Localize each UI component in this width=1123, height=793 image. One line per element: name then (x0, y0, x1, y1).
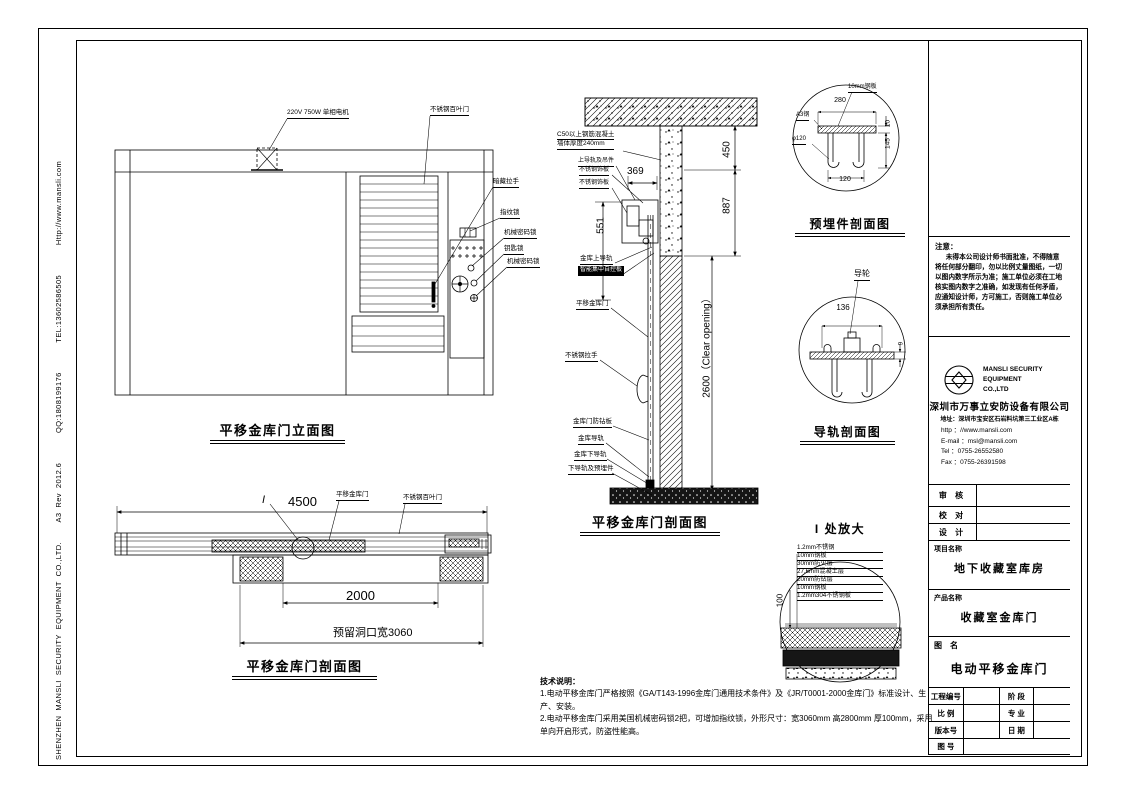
company-fax: Fax ：0755-26391598 (941, 458, 1070, 469)
stainless-plate-label-2: 不锈钢饰板 (579, 180, 609, 189)
section-door-label: 平移金库门 (576, 300, 609, 310)
figure-no-row: 图 号 (929, 739, 1070, 755)
mechanical-lock-label: 机械密码锁 (504, 229, 537, 239)
dim-100: 100 (776, 589, 785, 613)
drawing-name-label: 图 名 (929, 637, 1070, 651)
vault-lower-rail-label: 金库下导轨 (574, 451, 607, 461)
notice-body: 未得本公司设计师书面批准，不得随意将任何部分翻印，勿以比例丈量图纸，一切以图内数… (935, 253, 1064, 313)
title-block-empty-cell (929, 40, 1070, 237)
engineering-no-row: 工程编号 阶 段 (929, 688, 1070, 705)
layer-label-7: 1.2mm304不锈钢板 (797, 592, 883, 601)
dim-551: 551 (596, 211, 607, 241)
stainless-plate-label-1: 不锈钢饰板 (579, 167, 609, 176)
rail-detail-title: 导轨剖面图 (800, 423, 895, 445)
scale-row: 比 例 专 业 (929, 705, 1070, 722)
section-title: 平移金库门剖面图 (580, 512, 720, 536)
engineering-no-label: 工程编号 (929, 688, 964, 704)
notice-cell: 注意： 未得本公司设计师书面批准，不得随意将任何部分翻印，勿以比例丈量图纸，一切… (929, 237, 1070, 337)
concrete-wall-label: C50以上钢筋混凝土 墙体厚度240mm (557, 131, 614, 150)
company-en-line3: CO.,LTD (983, 385, 1043, 395)
dim-10: 10 (885, 114, 892, 134)
embed-plate-label: 10mm钢板 (848, 84, 877, 93)
product-name-cell: 产品名称 收藏室金库门 (929, 590, 1070, 637)
technical-note-2: 2.电动平移金库门采用美国机械密码锁2把，可增加指纹锁，外形尺寸：宽3060mm… (540, 713, 938, 738)
louver-door-label: 不锈钢百叶门 (430, 106, 469, 116)
company-cell: MANSLI SECURITY EQUIPMENT CO.,LTD 深圳市万事立… (929, 337, 1070, 485)
design-label: 设 计 (929, 524, 977, 540)
concrete-wall-label-line1: C50以上钢筋混凝土 (557, 131, 614, 140)
embed-phi-label: φ120 (792, 136, 806, 145)
elevation-drawing (108, 100, 548, 445)
proof-row: 校 对 (929, 507, 1070, 524)
dim-136: 136 (828, 303, 858, 312)
upper-rail-hanger-label: 上导轨及吊件 (578, 158, 614, 167)
mechanical-lock2-label: 机械密码锁 (507, 258, 540, 268)
guide-wheel-label: 导轮 (854, 269, 870, 281)
detail-marker-i: I (262, 494, 265, 506)
plan-door-label: 平移金库门 (336, 491, 369, 501)
dim-4500: 4500 (288, 494, 317, 509)
dim-280: 280 (825, 97, 855, 104)
project-name-value: 地下收藏室库房 (929, 560, 1070, 576)
concrete-wall-label-line2: 墙体厚度240mm (557, 140, 614, 148)
dim-9: 9 (898, 336, 905, 352)
embed-steel-label: A3钢 (796, 112, 809, 121)
major-label: 专 业 (1000, 705, 1035, 721)
notice-title: 注意： (935, 241, 1064, 252)
motor-label: 220V 750W 单相电机 (287, 109, 349, 119)
embed-detail-title: 预埋件剖面图 (795, 215, 905, 237)
plan-section-drawing (108, 488, 528, 660)
dim-369: 369 (627, 166, 644, 177)
company-cn-name: 深圳市万事立安防设备有限公司 (929, 399, 1070, 413)
dim-2000: 2000 (346, 588, 375, 603)
dim-120: 120 (830, 176, 860, 183)
project-name-label: 项目名称 (929, 541, 1070, 554)
vault-rail-label: 金库导轨 (578, 435, 604, 445)
proof-label: 校 对 (929, 507, 977, 523)
hidden-handle-label: 暗藏拉手 (493, 178, 519, 188)
vault-upper-rail-label: 金库上导轨 (580, 255, 613, 265)
dim-887: 887 (722, 191, 733, 221)
company-email: E-mail ：msl@mansli.com (941, 437, 1070, 448)
dim-450: 450 (722, 135, 733, 165)
company-tel: Tel ：0755-26552580 (941, 447, 1070, 458)
drawing-name-cell: 图 名 电动平移金库门 (929, 637, 1070, 688)
elevation-title: 平移金库门立面图 (210, 420, 345, 444)
company-address: 地址：深圳市宝安区石岩料坑第三工业区A栋 (929, 414, 1070, 423)
company-http: http ：//www.mansli.com (941, 426, 1070, 437)
review-label: 审 核 (929, 485, 977, 506)
enlarged-detail-title: I 处放大 (795, 520, 885, 538)
project-name-cell: 项目名称 地下收藏室库房 (929, 541, 1070, 590)
scale-label: 比 例 (929, 705, 964, 721)
product-name-value: 收藏室金库门 (929, 609, 1070, 625)
technical-notes: 技术说明： 1.电动平移金库门严格按照《GA/T143-1996金库门通用技术条… (540, 676, 938, 738)
stainless-handle-label: 不锈钢拉手 (565, 352, 598, 362)
version-label: 版本号 (929, 722, 964, 738)
key-lock-label: 钥匙锁 (504, 245, 524, 255)
version-row: 版本号 日 期 (929, 722, 1070, 739)
plan-title: 平移金库门剖面图 (232, 656, 377, 680)
dim-opening-3060: 预留洞口宽3060 (333, 624, 412, 640)
side-strip-text: SHENZHEN MANSLI SECURITY EQUIPMENT CO.,L… (54, 42, 63, 760)
technical-note-1: 1.电动平移金库门严格按照《GA/T143-1996金库门通用技术条件》及《JR… (540, 688, 938, 713)
plan-louver-label: 不锈钢百叶门 (403, 494, 442, 504)
stage-label: 阶 段 (1000, 688, 1035, 704)
company-en-line2: EQUIPMENT (983, 375, 1043, 385)
drawing-sheet: SHENZHEN MANSLI SECURITY EQUIPMENT CO.,L… (0, 0, 1123, 793)
title-block: 注意： 未得本公司设计师书面批准，不得随意将任何部分翻印，勿以比例丈量图纸，一切… (928, 40, 1070, 755)
control-board-label: 智能集中自控板 (578, 266, 624, 276)
lower-rail-embed-label: 下导轨及预埋件 (568, 465, 614, 475)
technical-notes-heading: 技术说明： (540, 676, 938, 688)
design-row: 设 计 (929, 524, 1070, 541)
dim-145: 145 (885, 134, 892, 154)
dim-clear-opening: 2600（Clear opening） (698, 291, 713, 401)
fingerprint-lock-label: 指纹锁 (500, 209, 520, 219)
product-name-label: 产品名称 (929, 590, 1070, 603)
anti-drill-plate-label: 金库门防钻板 (573, 418, 612, 428)
mansli-logo-icon (939, 363, 979, 397)
date-label: 日 期 (1000, 722, 1035, 738)
drawing-name-value: 电动平移金库门 (929, 660, 1070, 677)
review-row: 审 核 (929, 485, 1070, 507)
company-en-line1: MANSLI SECURITY (983, 365, 1043, 375)
figure-no-label: 图 号 (929, 739, 964, 754)
